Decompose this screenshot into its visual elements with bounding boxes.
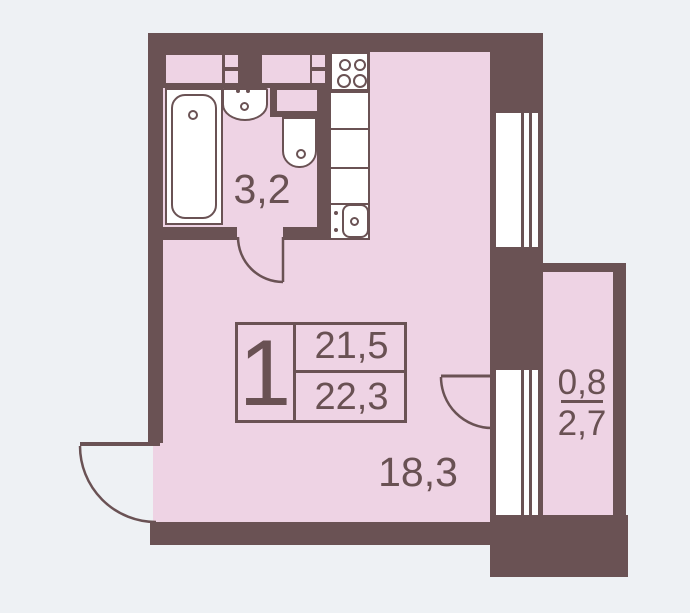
kitchen-window-glazing-line-1: [521, 113, 524, 247]
balcony-right-wall: [613, 263, 626, 515]
bottom-wall: [150, 522, 492, 545]
counter-divider-3: [329, 167, 370, 169]
balcony-full-area-label: 2,7: [552, 405, 612, 441]
living-room-area-label: 18,3: [358, 451, 478, 493]
kitchen-sink-tap-dot-1: [334, 211, 338, 215]
kitchen-sink-drain-icon: [350, 217, 359, 226]
wall-shaft-2a: [312, 55, 325, 67]
counter-divider-1: [329, 91, 370, 93]
washbasin-tap-dot-1: [236, 89, 240, 93]
wall-shaft-1b: [225, 71, 238, 83]
kitchen-window-glazing-line-2: [529, 113, 532, 247]
bathroom-bottom-wall-right: [283, 227, 329, 240]
counter-divider-2: [329, 128, 370, 130]
wall-cabinet-1: [166, 55, 222, 83]
entrance-door-opening: [153, 443, 163, 522]
bottom-right-wall-block: [543, 515, 628, 577]
stove-burner-1: [339, 59, 351, 71]
bathroom-area-label: 3,2: [212, 168, 312, 210]
bathroom-bottom-wall-left: [148, 227, 237, 240]
washbasin-drain-icon: [240, 102, 249, 111]
top-wall: [148, 33, 543, 52]
entrance-door-swing-arc: [80, 446, 156, 522]
toilet-cistern-inset: [277, 90, 317, 111]
balcony-window-glazing-line-2: [529, 370, 532, 515]
balcony-reduced-area-label: 0,8: [552, 364, 612, 400]
bathtub-drain-icon: [188, 110, 198, 120]
kitchen-floor: [370, 52, 490, 240]
bathroom-door-opening: [237, 227, 283, 240]
living-area-value: 21,5: [296, 322, 407, 370]
toilet-icon: [282, 117, 317, 168]
toilet-drain-icon: [296, 149, 306, 159]
wall-cabinet-2: [262, 55, 310, 83]
balcony-window-glazing-line-1: [521, 370, 524, 515]
total-area-value: 22,3: [296, 373, 407, 421]
wall-shaft-1a: [225, 55, 238, 67]
balcony-fraction-line: [561, 400, 603, 403]
kitchen-sink-tap-dot-2: [334, 228, 338, 232]
washbasin-tap-dot-2: [246, 89, 250, 93]
stove-burner-2: [354, 59, 366, 71]
apartment-number: 1: [235, 322, 295, 423]
wall-shaft-2b: [312, 71, 325, 83]
floor-plan: 1 21,5 22,3 3,2 18,3 0,8 2,7: [0, 0, 690, 613]
stove-burner-3: [337, 74, 351, 88]
stove-burner-4: [353, 74, 367, 88]
